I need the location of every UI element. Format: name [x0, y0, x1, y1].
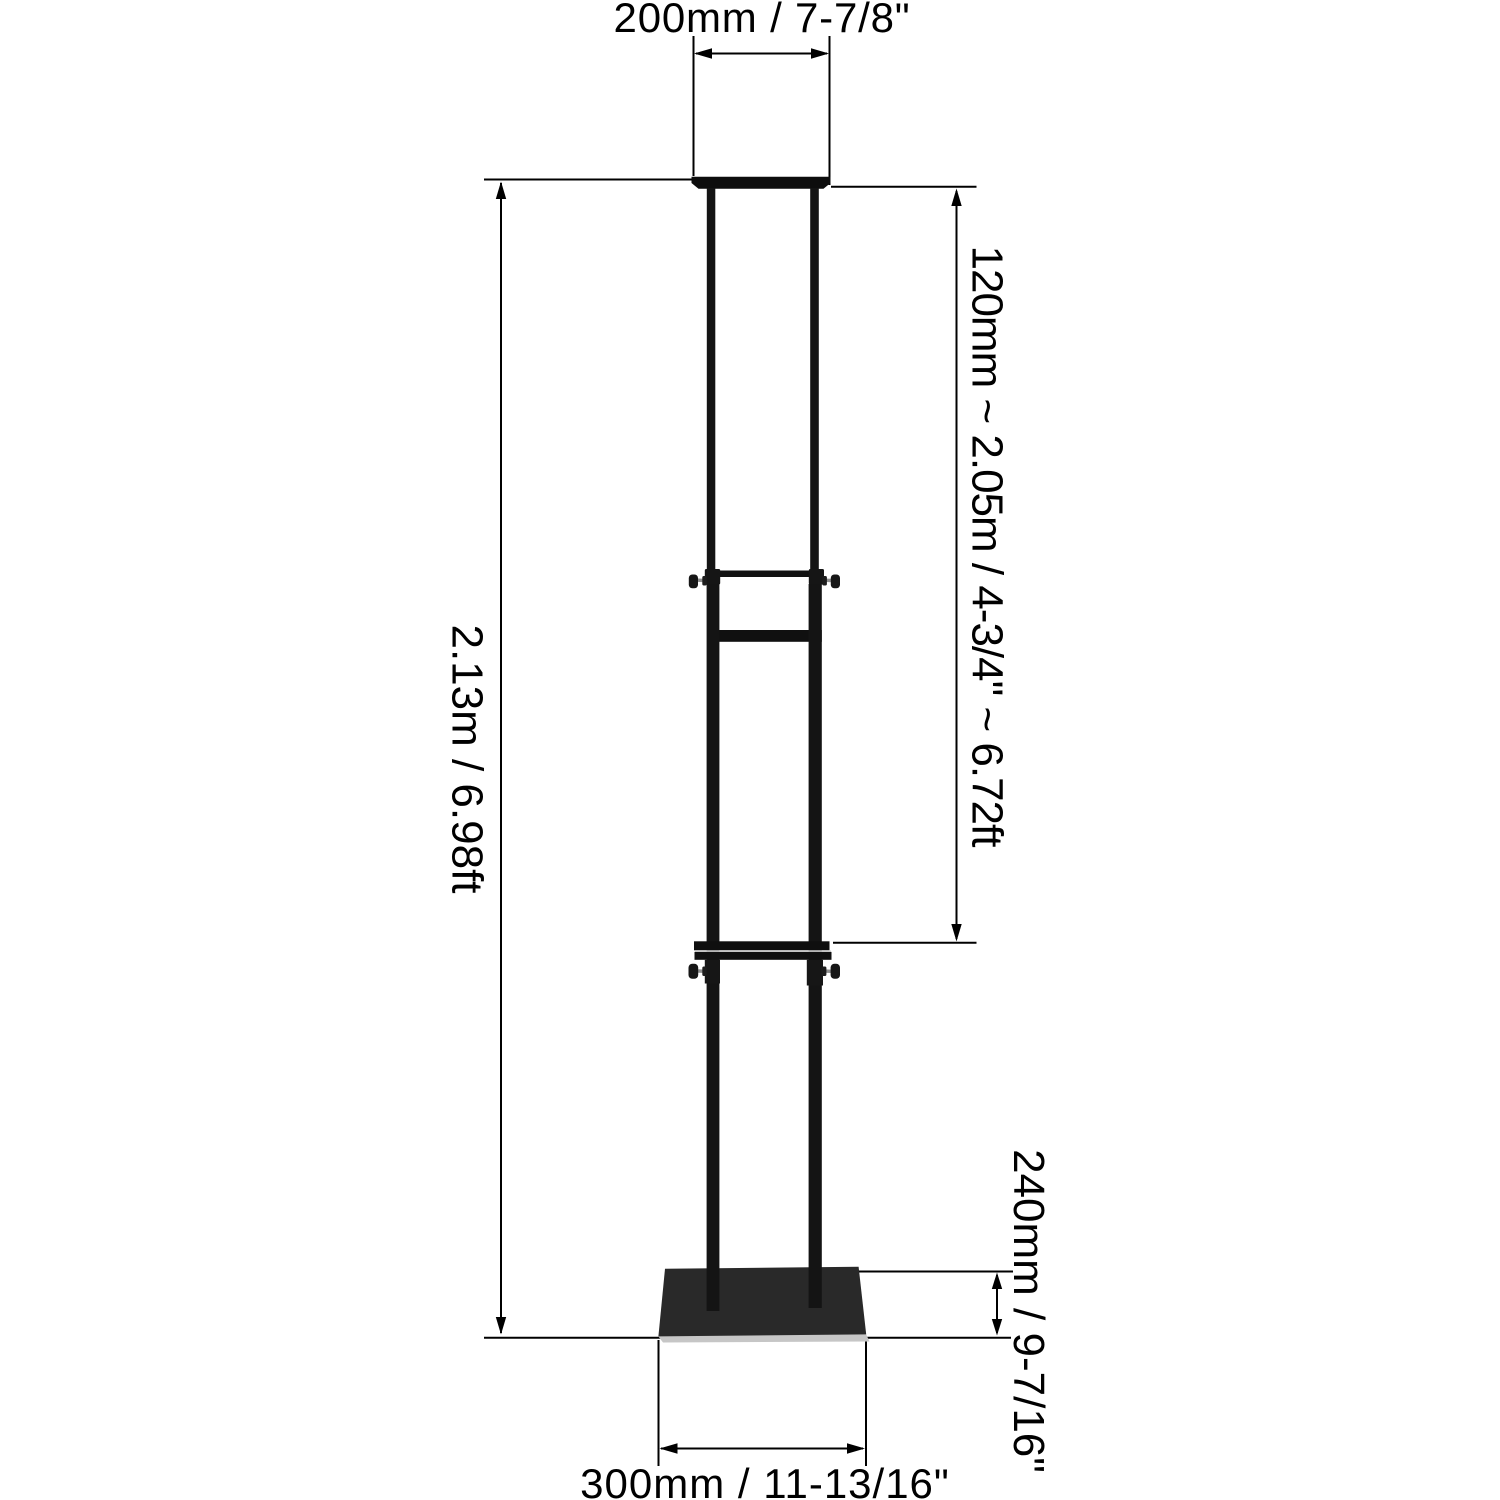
svg-text:2.13m / 6.98ft: 2.13m / 6.98ft	[443, 624, 492, 893]
svg-text:200mm / 7-7/8": 200mm / 7-7/8"	[614, 0, 911, 41]
svg-text:120mm ~ 2.05m / 4-3/4" ~ 6.72f: 120mm ~ 2.05m / 4-3/4" ~ 6.72ft	[963, 246, 1012, 848]
svg-text:240mm / 9-7/16": 240mm / 9-7/16"	[1004, 1149, 1053, 1473]
svg-text:300mm / 11-13/16": 300mm / 11-13/16"	[580, 1460, 950, 1500]
